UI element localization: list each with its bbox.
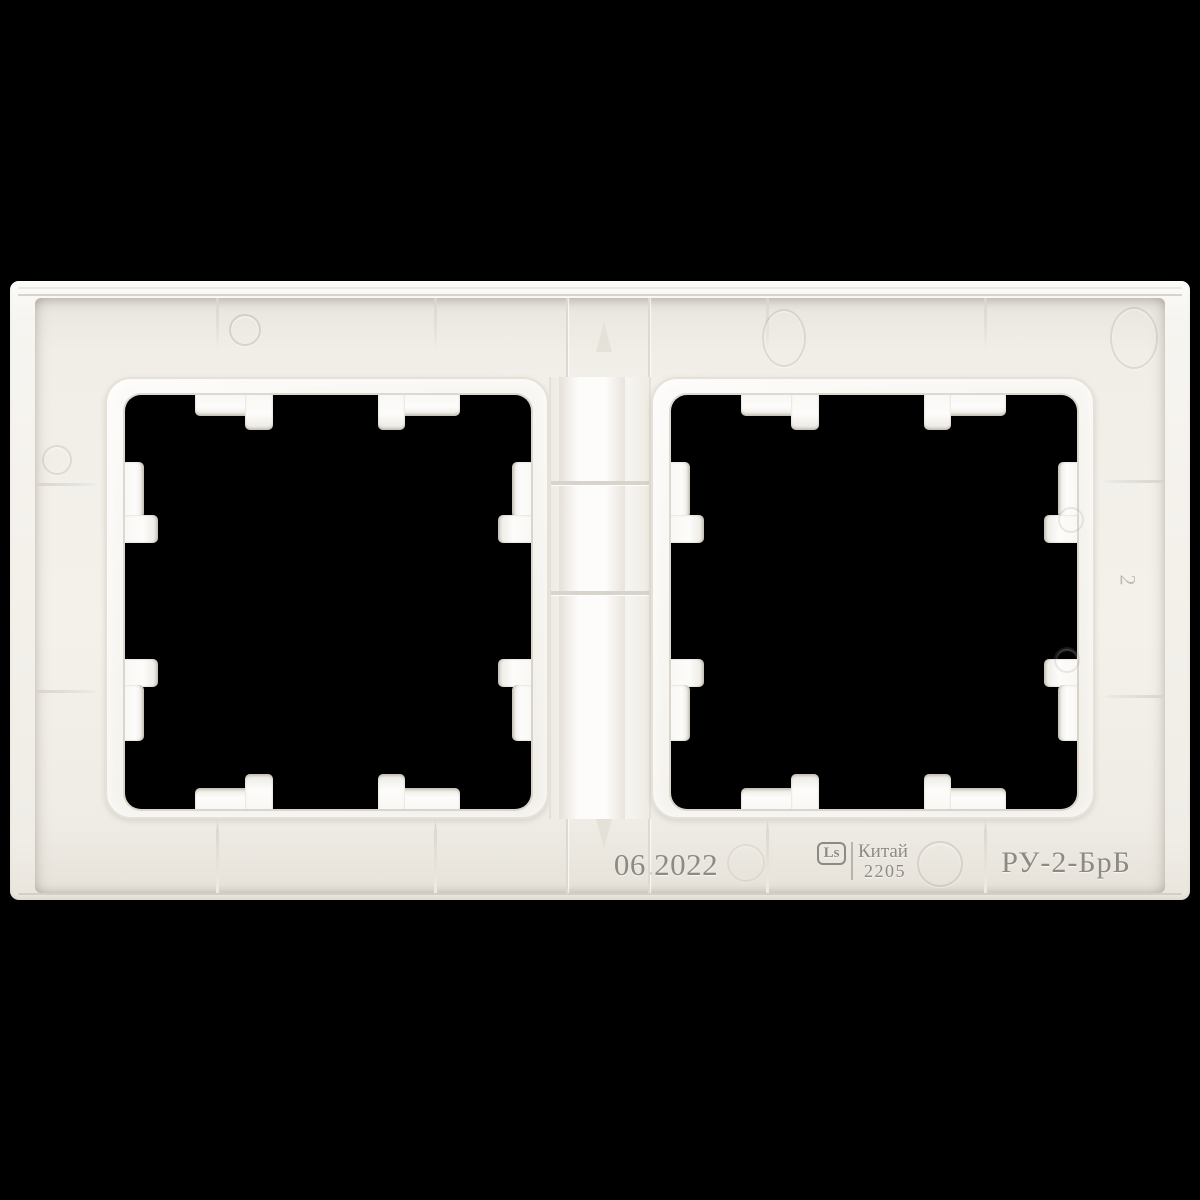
right-module-opening [671, 395, 1077, 809]
right-module-face [651, 377, 1095, 819]
brand-text-block: Китай 2205 [851, 842, 908, 880]
mounting-tab [791, 395, 819, 430]
mounting-tab [671, 685, 690, 741]
middle-bridge-face [549, 377, 651, 819]
mold-boss [1054, 647, 1080, 673]
channel-wall-rib [566, 298, 568, 377]
mounting-tab [378, 395, 405, 430]
mold-boss [229, 314, 261, 346]
mounting-tab [512, 685, 531, 741]
middle-rib-lower [551, 591, 649, 595]
channel-wall-rib [566, 819, 568, 893]
channel-wall-rib [648, 819, 650, 893]
left-module-face [105, 377, 549, 819]
brand-badge: Ls Китай 2205 [817, 842, 908, 880]
mounting-tab [125, 685, 144, 741]
support-rib [1102, 480, 1164, 483]
support-rib [434, 298, 437, 350]
batch-code-text: 2205 [864, 862, 908, 880]
mounting-tab [125, 515, 158, 543]
mounting-tab [498, 659, 531, 687]
mold-boss [727, 844, 765, 882]
brand-logo-box: Ls [817, 842, 846, 865]
mounting-tab [671, 462, 690, 518]
country-text: Китай [858, 842, 908, 861]
support-rib [766, 819, 769, 893]
mounting-tab [791, 774, 819, 809]
mounting-tab [245, 395, 273, 430]
mold-boss [1058, 507, 1084, 533]
date-stamp-text: 06.2022 [611, 847, 721, 883]
mold-cavity-number: 2 [1115, 575, 1141, 586]
support-rib [984, 819, 987, 893]
brand-logo-text: Ls [824, 845, 840, 862]
mounting-tab [671, 515, 704, 543]
mounting-tab [512, 462, 531, 518]
frame-body: 06.2022 Ls Китай 2205 РУ-2-БрБ 2 [10, 281, 1190, 900]
support-rib [1102, 695, 1164, 698]
outer-rim-highlight [18, 287, 1182, 289]
mold-boss [1110, 307, 1158, 369]
support-rib [216, 298, 219, 350]
mounting-tab [245, 774, 273, 809]
left-module-opening [125, 395, 531, 809]
channel-wall-rib [648, 298, 650, 377]
photo-canvas: 06.2022 Ls Китай 2205 РУ-2-БрБ 2 [0, 0, 1200, 1200]
mold-boss [42, 445, 72, 475]
mounting-tab [125, 462, 144, 518]
gusset-rib [596, 322, 612, 352]
mounting-tab [498, 515, 531, 543]
bottom-rim-line [18, 893, 1182, 895]
mold-boss [917, 841, 963, 887]
middle-channel [559, 377, 625, 819]
support-rib [434, 819, 437, 893]
model-code-text: РУ-2-БрБ [986, 846, 1146, 880]
support-rib [984, 298, 987, 350]
mounting-tab [924, 395, 951, 430]
support-rib [36, 690, 98, 693]
middle-rib-upper [551, 481, 649, 485]
outer-rim-shadow-line [18, 294, 1182, 296]
mounting-tab [924, 774, 951, 809]
mounting-tab [671, 659, 704, 687]
support-rib [216, 819, 219, 893]
support-rib [36, 483, 98, 486]
mounting-tab [1058, 685, 1077, 741]
mounting-tab [378, 774, 405, 809]
gusset-rib [596, 819, 612, 849]
mold-boss [762, 309, 806, 367]
mounting-tab [125, 659, 158, 687]
